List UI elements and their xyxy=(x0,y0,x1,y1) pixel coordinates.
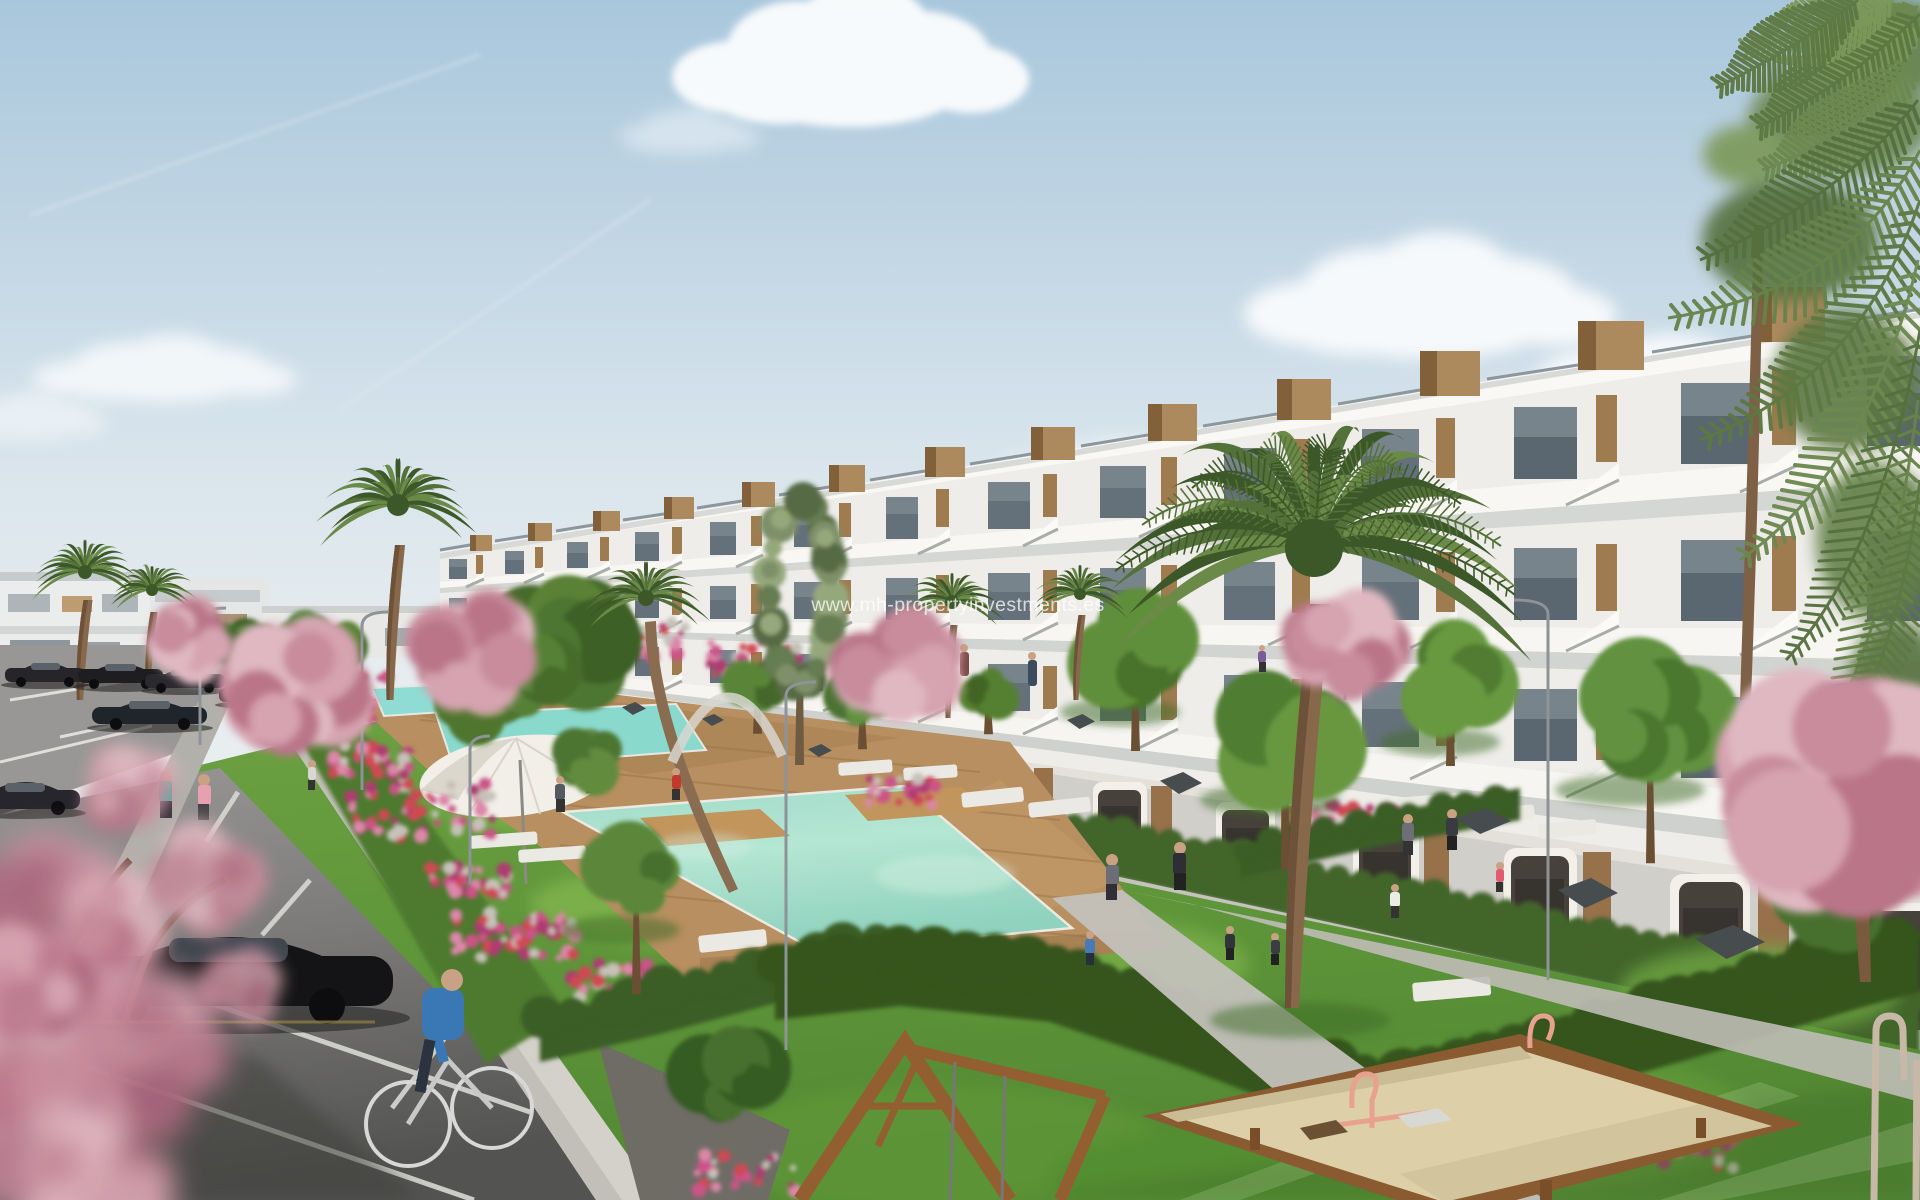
svg-text:www.mh-propertyinvestments.es: www.mh-propertyinvestments.es xyxy=(810,594,1104,616)
